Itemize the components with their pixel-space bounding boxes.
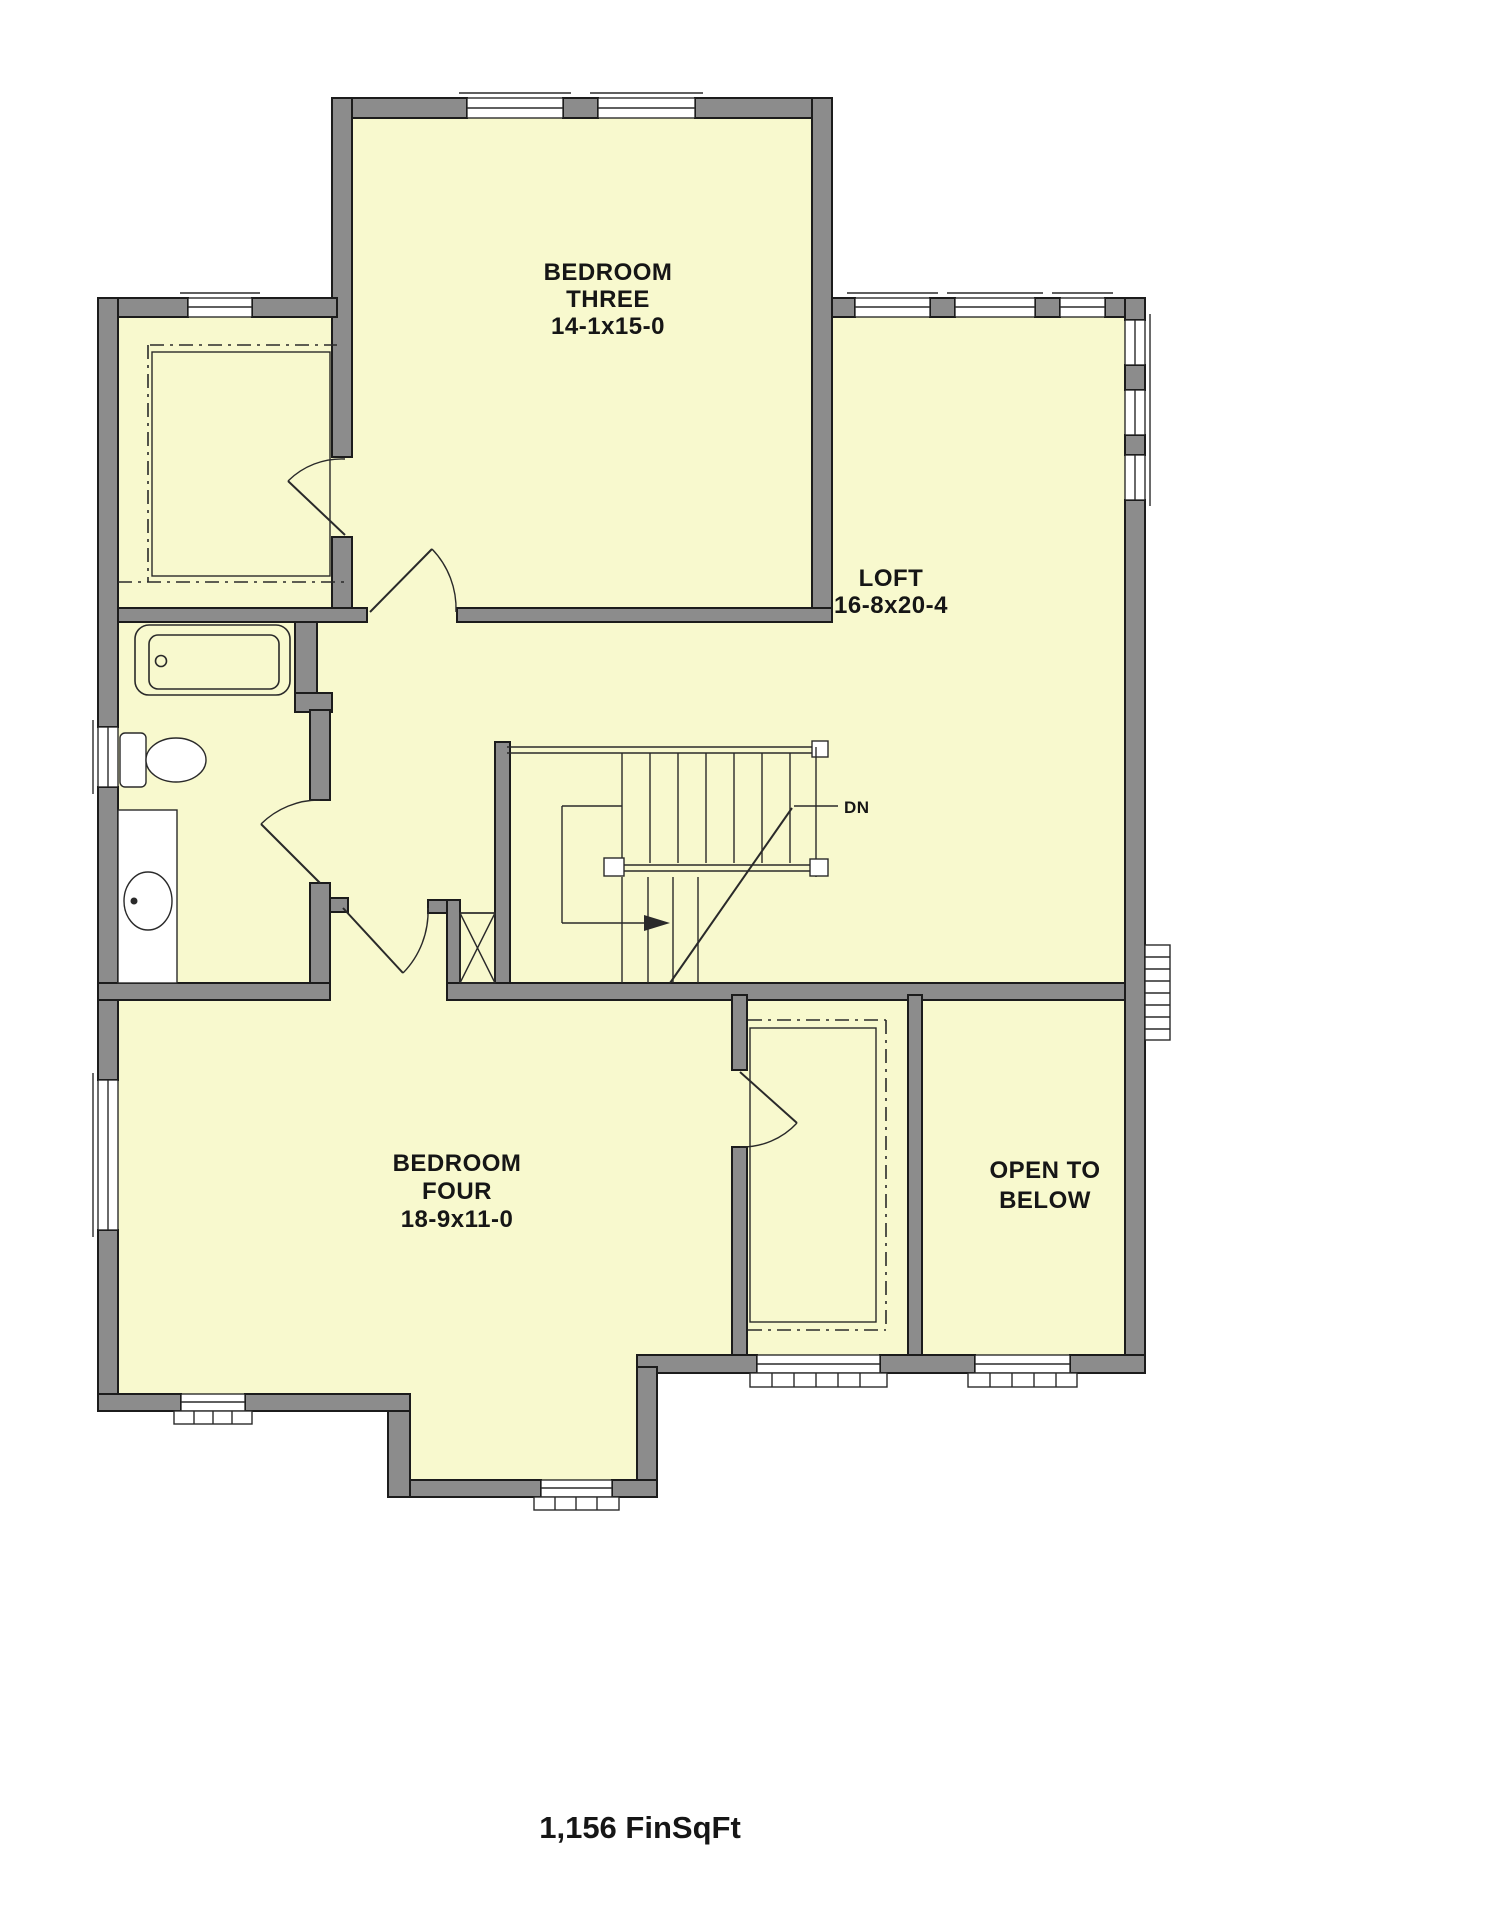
exterior-hatched-block (1145, 945, 1170, 1040)
railing-post (604, 858, 624, 876)
toilet-icon (120, 733, 206, 787)
sink-vanity-icon (118, 810, 177, 983)
open-to-below-label: OPEN TO (989, 1157, 1100, 1184)
finished-square-feet-label: 1,156 FinSqFt (539, 1810, 741, 1845)
bedroom-four-dimensions: 18-9x11-0 (401, 1206, 514, 1233)
stair-direction-label: DN (844, 798, 870, 817)
loft-label: LOFT (859, 565, 924, 592)
floor-plan-page: DN BEDROOM THREE 14-1x15-0 LOFT 16-8x20-… (0, 0, 1500, 1925)
bedroom-four-label: BEDROOM (393, 1150, 522, 1177)
bedroom-three-dimensions: 14-1x15-0 (551, 313, 665, 340)
railing-post (812, 741, 828, 757)
bathtub-icon (135, 625, 290, 695)
railing-post (810, 859, 828, 876)
bedroom-four-label-2: FOUR (422, 1178, 492, 1205)
loft-dimensions: 16-8x20-4 (834, 592, 948, 619)
bedroom-three-label-2: THREE (566, 286, 650, 313)
floor-plan-drawing: DN BEDROOM THREE 14-1x15-0 LOFT 16-8x20-… (0, 0, 1500, 1925)
bedroom-three-label: BEDROOM (544, 259, 673, 286)
open-to-below-label-2: BELOW (999, 1187, 1091, 1214)
